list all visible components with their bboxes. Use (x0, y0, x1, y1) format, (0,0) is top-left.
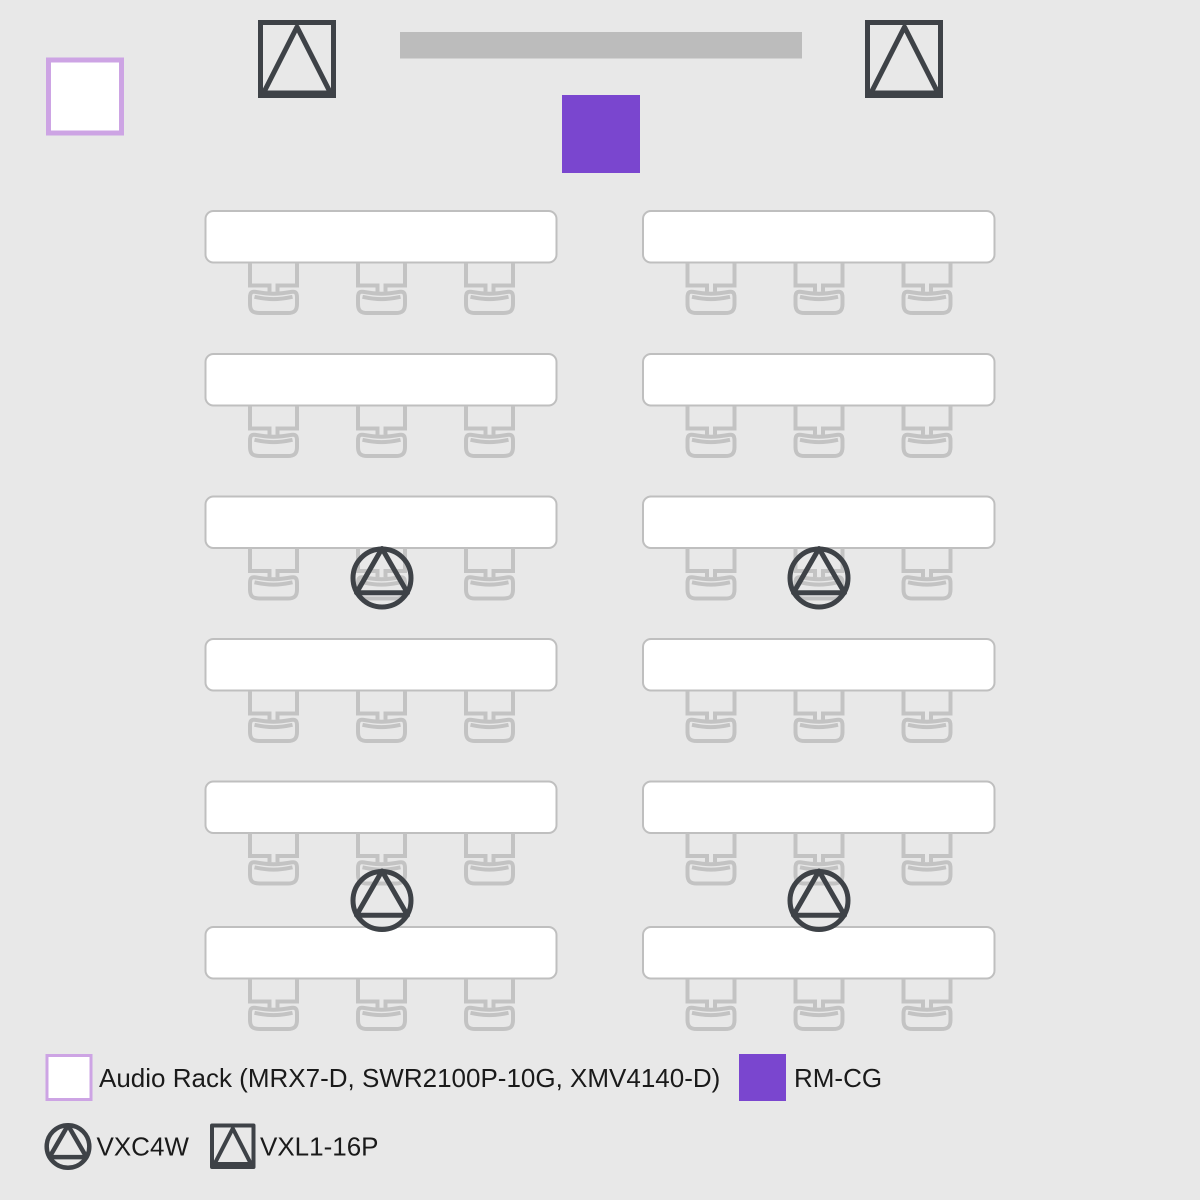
svg-text:RM-CG: RM-CG (794, 1063, 882, 1093)
svg-text:Audio Rack (MRX7-D, SWR2100P-1: Audio Rack (MRX7-D, SWR2100P-10G, XMV414… (99, 1063, 720, 1093)
svg-text:VXL1-16P: VXL1-16P (260, 1132, 379, 1162)
svg-text:VXC4W: VXC4W (97, 1132, 190, 1162)
